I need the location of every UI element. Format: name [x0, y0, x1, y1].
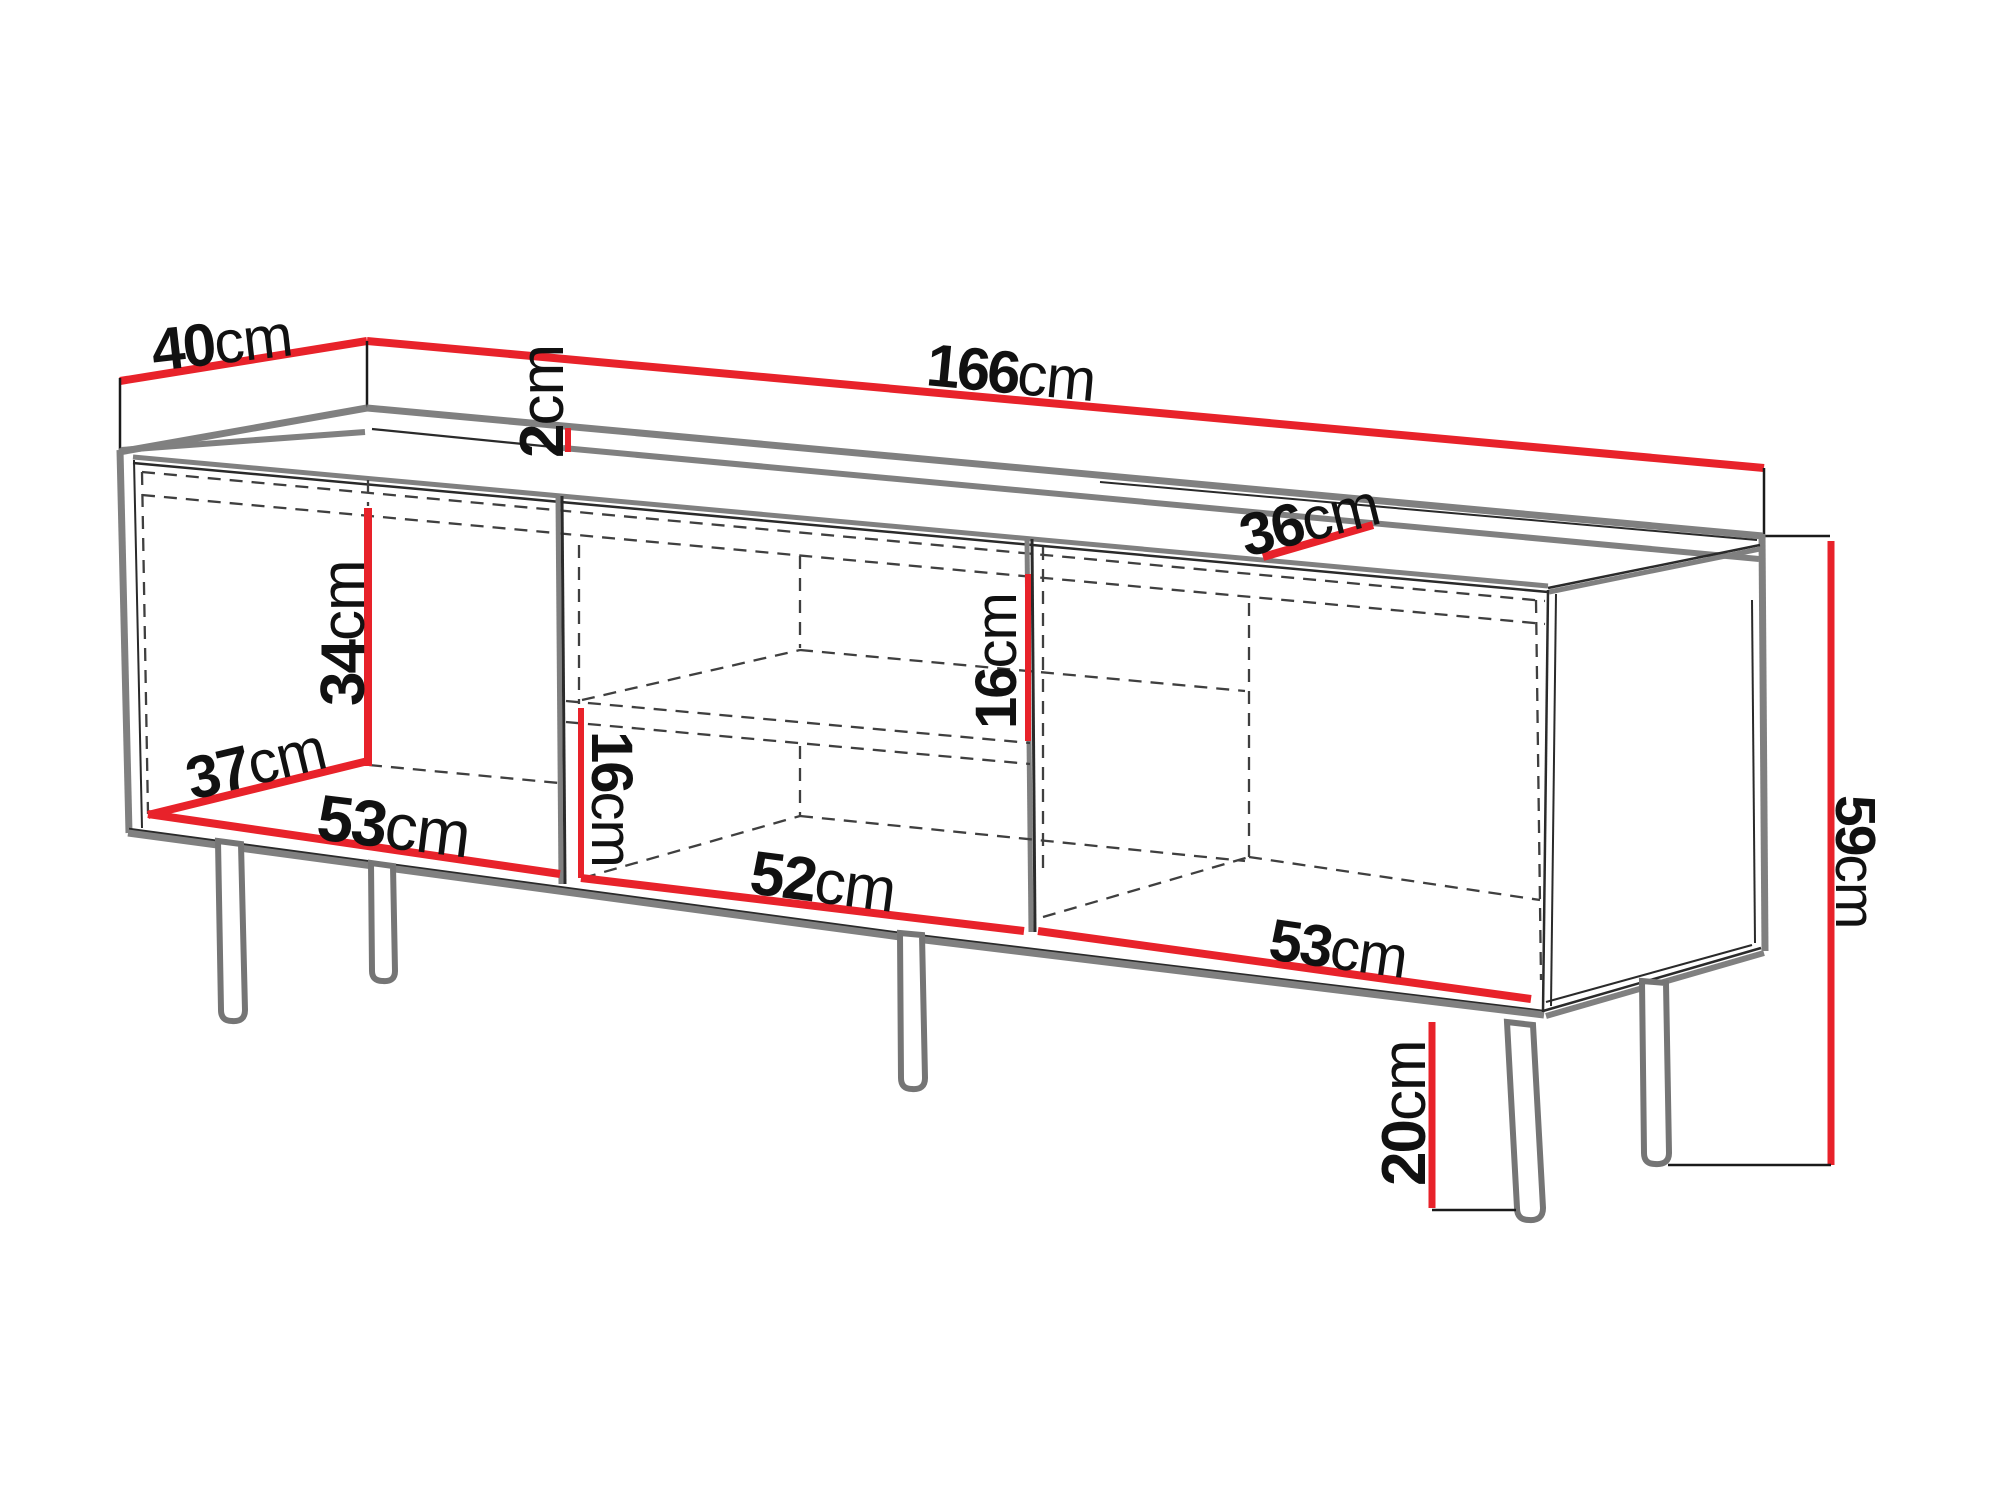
svg-text:16cm: 16cm	[964, 593, 1029, 729]
svg-text:2cm: 2cm	[508, 345, 577, 458]
svg-text:53cm: 53cm	[1265, 907, 1411, 992]
svg-text:59cm: 59cm	[1823, 795, 1887, 928]
svg-text:20cm: 20cm	[1370, 1040, 1439, 1186]
svg-text:16cm: 16cm	[579, 731, 644, 867]
svg-text:36cm: 36cm	[1233, 471, 1386, 570]
svg-text:52cm: 52cm	[746, 838, 899, 925]
svg-text:166cm: 166cm	[924, 331, 1099, 414]
svg-text:37cm: 37cm	[179, 715, 331, 813]
svg-text:34cm: 34cm	[309, 560, 378, 706]
svg-text:40cm: 40cm	[148, 301, 295, 384]
